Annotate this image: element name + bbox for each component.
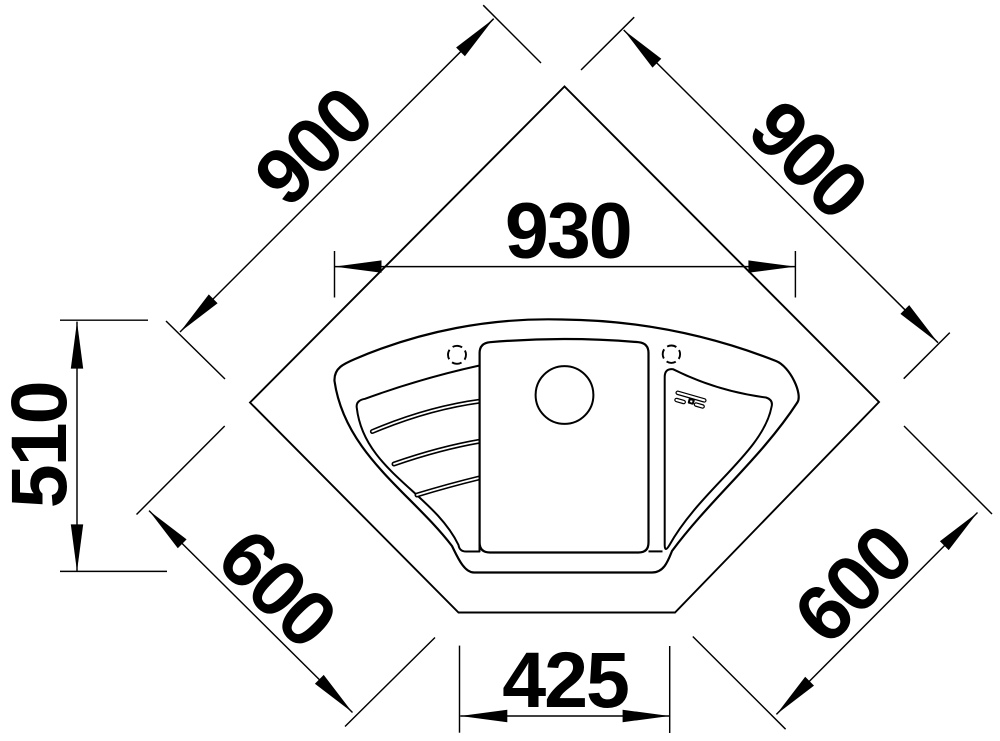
svg-text:425: 425 <box>502 635 628 724</box>
svg-text:930: 930 <box>505 186 631 275</box>
svg-text:510: 510 <box>0 382 83 508</box>
